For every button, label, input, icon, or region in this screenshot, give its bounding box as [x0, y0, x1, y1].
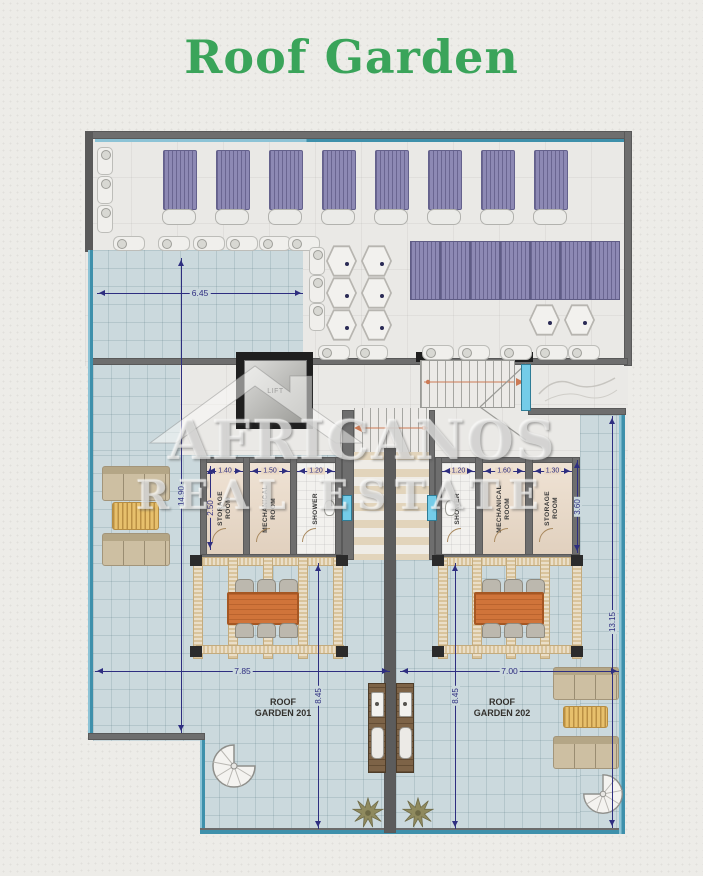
dining-chair — [482, 623, 501, 638]
pergola-rail — [196, 645, 344, 654]
pergola-beam — [572, 557, 582, 659]
dining-chair — [526, 623, 545, 638]
right-glass-rail — [619, 408, 625, 834]
dim-garden-201-depth: 8.45 — [318, 563, 319, 829]
pergola-post — [336, 646, 348, 657]
dim-garden-202-depth: 8.45 — [455, 563, 456, 829]
dim-garden-201-width: 7.85 — [95, 671, 390, 672]
pergola-post — [190, 555, 202, 566]
pergola-post — [190, 646, 202, 657]
dim-right-depth: 13.15 — [612, 416, 613, 828]
garden-202-label: ROOF GARDEN 202 — [462, 697, 542, 719]
pergola-post — [571, 646, 583, 657]
sun-lounger — [534, 150, 568, 210]
pergola-post — [571, 555, 583, 566]
garden-201-label: ROOF GARDEN 201 — [243, 697, 323, 719]
side-table — [193, 236, 225, 251]
grill — [371, 727, 384, 759]
dim-right-depth-label: 13.15 — [609, 610, 617, 634]
notch-wall — [88, 733, 205, 740]
sink — [399, 692, 412, 717]
dim-garden-201-width-label: 7.85 — [232, 667, 253, 676]
bbq-counter-left — [368, 683, 386, 773]
top-wall — [85, 131, 632, 139]
pergola-beam — [438, 557, 448, 659]
plant — [352, 797, 384, 829]
dim-storage-right-depth-label: 3.60 — [574, 497, 582, 517]
dining-chair — [257, 623, 276, 638]
side-table — [158, 236, 190, 251]
planter — [97, 176, 113, 204]
plant — [402, 797, 434, 829]
side-table — [500, 345, 532, 360]
pergola-beam — [193, 557, 203, 659]
planter — [309, 303, 325, 331]
sun-lounger — [269, 150, 303, 210]
dim-terrace-width-label: 6.45 — [190, 289, 211, 298]
side-table — [226, 236, 258, 251]
solar-panel — [530, 241, 560, 300]
dim-terrace-width: 6.45 — [97, 293, 303, 294]
solar-panel — [590, 241, 620, 300]
spiral-staircase-right — [581, 772, 625, 816]
sun-lounger — [216, 150, 250, 210]
pergola-post — [432, 555, 444, 566]
top-glass-rail — [95, 139, 624, 142]
bbq-counter-right — [396, 683, 414, 773]
grill — [399, 727, 412, 759]
left-wall-upper — [85, 131, 93, 252]
spiral-staircase-left — [210, 742, 258, 790]
sun-lounger — [375, 150, 409, 210]
sun-lounger — [481, 150, 515, 210]
side-table — [568, 345, 600, 360]
dining-chair — [504, 623, 523, 638]
stair-window — [521, 364, 531, 411]
pergola-rail — [438, 645, 582, 654]
floor-plan-page: Roof Garden LIFT — [0, 0, 703, 876]
watermark-brand: AFRICANOS — [168, 408, 557, 472]
side-table — [113, 236, 145, 251]
coffee-table — [563, 706, 608, 728]
side-table — [422, 345, 454, 360]
dining-table — [227, 592, 299, 625]
side-table — [259, 236, 291, 251]
planter — [97, 205, 113, 233]
solar-panel — [410, 241, 440, 300]
sofa — [102, 533, 170, 566]
watermark-tagline: REAL ESTATE — [136, 472, 548, 519]
floor-plan: LIFT — [0, 0, 703, 876]
dining-table — [474, 592, 544, 625]
solar-panel — [470, 241, 500, 300]
planter — [309, 247, 325, 275]
dim-garden-202-width: 7.00 — [400, 671, 619, 672]
upper-terrace-tiles — [90, 250, 303, 360]
left-glass-rail — [88, 250, 93, 740]
dim-storage-right-depth: 3.60 — [577, 460, 578, 553]
exterior-notch — [78, 741, 200, 876]
pergola-post — [432, 646, 444, 657]
right-wall-upper — [624, 131, 632, 366]
left-lower-glass-rail — [200, 740, 205, 833]
sink — [371, 692, 384, 717]
sofa — [553, 736, 619, 769]
planter — [97, 147, 113, 175]
dining-chair — [235, 623, 254, 638]
pergola-post — [336, 555, 348, 566]
sun-lounger — [428, 150, 462, 210]
planter — [309, 275, 325, 303]
dim-garden-202-depth-label: 8.45 — [452, 686, 460, 706]
sun-lounger — [322, 150, 356, 210]
solar-panel — [500, 241, 530, 300]
sun-lounger — [163, 150, 197, 210]
pergola-beam — [298, 557, 308, 659]
solar-panel — [440, 241, 470, 300]
solar-panel — [560, 241, 590, 300]
dining-chair — [279, 623, 298, 638]
marble-veins — [535, 368, 620, 406]
pergola-beam — [333, 557, 343, 659]
side-table — [536, 345, 568, 360]
side-table — [458, 345, 490, 360]
dim-garden-202-width-label: 7.00 — [499, 667, 520, 676]
